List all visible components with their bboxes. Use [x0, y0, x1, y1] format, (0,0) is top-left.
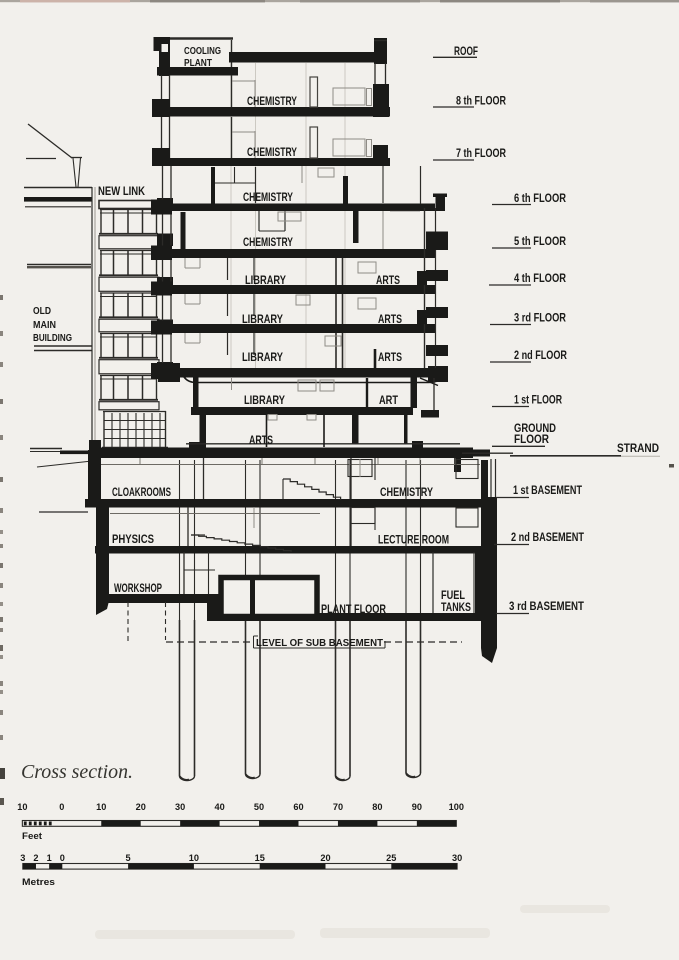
- svg-text:10: 10: [96, 802, 106, 812]
- svg-text:25: 25: [386, 853, 396, 863]
- svg-text:OLD: OLD: [33, 305, 51, 317]
- svg-text:MAIN: MAIN: [33, 319, 56, 331]
- svg-text:0: 0: [60, 853, 65, 863]
- svg-text:WORKSHOP: WORKSHOP: [114, 583, 162, 595]
- svg-text:15: 15: [255, 853, 265, 863]
- svg-text:FLOOR: FLOOR: [514, 434, 550, 446]
- svg-text:8 th FLOOR: 8 th FLOOR: [456, 96, 507, 108]
- svg-text:10: 10: [17, 802, 27, 812]
- svg-text:ARTS: ARTS: [376, 275, 400, 287]
- svg-text:60: 60: [293, 802, 303, 812]
- svg-text:2 nd FLOOR: 2 nd FLOOR: [514, 350, 568, 362]
- svg-text:CHEMISTRY: CHEMISTRY: [380, 487, 433, 499]
- svg-text:1 st FLOOR: 1 st FLOOR: [514, 395, 563, 407]
- svg-text:40: 40: [214, 802, 224, 812]
- svg-text:5 th FLOOR: 5 th FLOOR: [514, 236, 567, 248]
- svg-text:70: 70: [333, 802, 343, 812]
- svg-text:NEW LINK: NEW LINK: [98, 186, 146, 198]
- svg-text:20: 20: [136, 802, 146, 812]
- svg-text:10: 10: [189, 853, 199, 863]
- svg-text:BUILDING: BUILDING: [33, 332, 72, 344]
- svg-text:STRAND: STRAND: [617, 443, 659, 455]
- svg-text:3: 3: [20, 853, 25, 863]
- svg-text:Feet: Feet: [22, 831, 43, 842]
- svg-text:CHEMISTRY: CHEMISTRY: [247, 147, 297, 159]
- svg-text:3 rd BASEMENT: 3 rd BASEMENT: [509, 601, 584, 613]
- svg-text:PHYSICS: PHYSICS: [112, 534, 154, 546]
- svg-text:LIBRARY: LIBRARY: [242, 352, 283, 364]
- svg-text:FUEL: FUEL: [441, 590, 465, 602]
- svg-text:ROOF: ROOF: [454, 46, 478, 58]
- svg-text:LEVEL OF SUB BASEMENT: LEVEL OF SUB BASEMENT: [256, 638, 383, 649]
- svg-text:4 th FLOOR: 4 th FLOOR: [514, 273, 567, 285]
- svg-text:5: 5: [126, 853, 131, 863]
- svg-text:80: 80: [372, 802, 382, 812]
- svg-text:2 nd BASEMENT: 2 nd BASEMENT: [511, 532, 584, 544]
- svg-text:Metres: Metres: [22, 877, 55, 888]
- svg-text:CHEMISTRY: CHEMISTRY: [247, 96, 297, 108]
- svg-text:30: 30: [175, 802, 185, 812]
- svg-text:0: 0: [59, 802, 64, 812]
- svg-text:50: 50: [254, 802, 264, 812]
- svg-text:100: 100: [449, 802, 464, 812]
- svg-text:1 st BASEMENT: 1 st BASEMENT: [513, 485, 582, 497]
- svg-text:ARTS: ARTS: [378, 352, 402, 364]
- svg-text:PLANT FLOOR: PLANT FLOOR: [321, 604, 387, 616]
- svg-text:CHEMISTRY: CHEMISTRY: [243, 192, 293, 204]
- svg-text:LECTURE ROOM: LECTURE ROOM: [378, 535, 449, 547]
- svg-text:ARTS: ARTS: [378, 314, 402, 326]
- svg-text:ART: ART: [379, 395, 398, 407]
- svg-text:Cross section.: Cross section.: [21, 762, 133, 783]
- svg-text:PLANT: PLANT: [184, 57, 212, 69]
- svg-text:2: 2: [33, 853, 38, 863]
- svg-text:COOLING: COOLING: [184, 45, 221, 57]
- svg-text:3 rd FLOOR: 3 rd FLOOR: [514, 313, 567, 325]
- svg-text:CLOAKROOMS: CLOAKROOMS: [112, 487, 171, 499]
- svg-text:90: 90: [412, 802, 422, 812]
- svg-text:30: 30: [452, 853, 462, 863]
- svg-text:7 th FLOOR: 7 th FLOOR: [456, 148, 507, 160]
- svg-text:TANKS: TANKS: [441, 602, 471, 614]
- svg-text:LIBRARY: LIBRARY: [244, 395, 285, 407]
- svg-text:1: 1: [47, 853, 52, 863]
- svg-text:ARTS: ARTS: [249, 435, 273, 447]
- svg-text:LIBRARY: LIBRARY: [242, 314, 283, 326]
- svg-text:20: 20: [320, 853, 330, 863]
- svg-text:CHEMISTRY: CHEMISTRY: [243, 237, 293, 249]
- svg-text:6 th FLOOR: 6 th FLOOR: [514, 193, 567, 205]
- svg-text:LIBRARY: LIBRARY: [245, 275, 286, 287]
